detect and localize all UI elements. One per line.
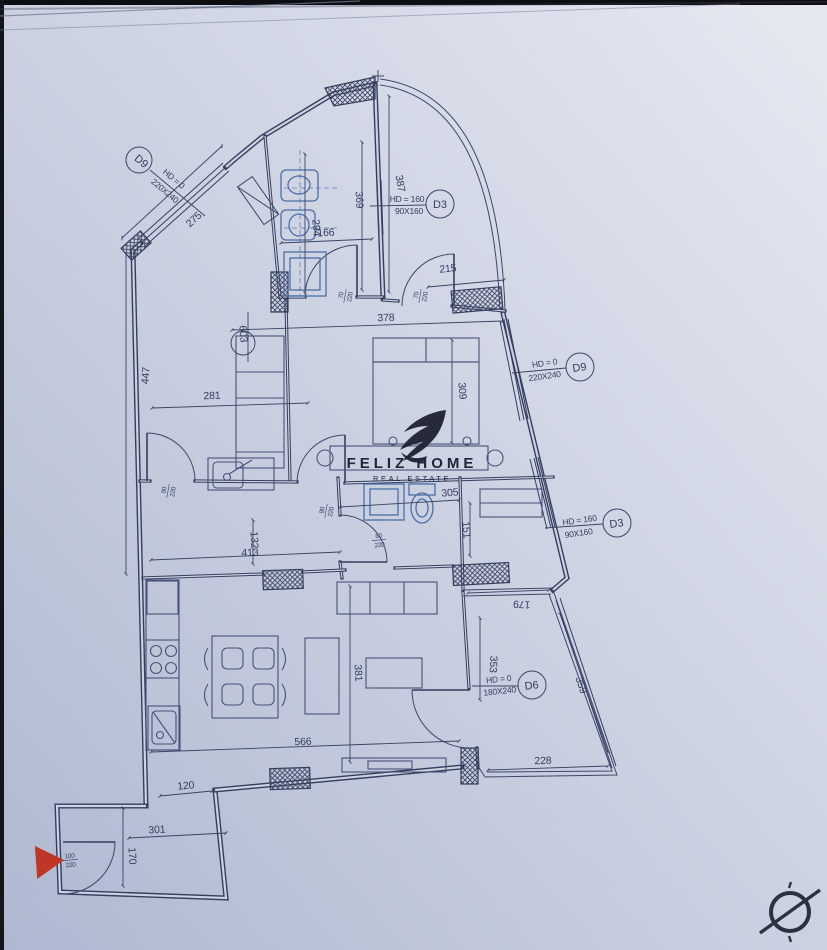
floor-plan-photo: 275 447 281 603 294 166 369 387 215 378 … <box>0 0 827 950</box>
photo-vignette <box>0 0 827 950</box>
floor-plan-drawing: 275 447 281 603 294 166 369 387 215 378 … <box>0 0 827 950</box>
